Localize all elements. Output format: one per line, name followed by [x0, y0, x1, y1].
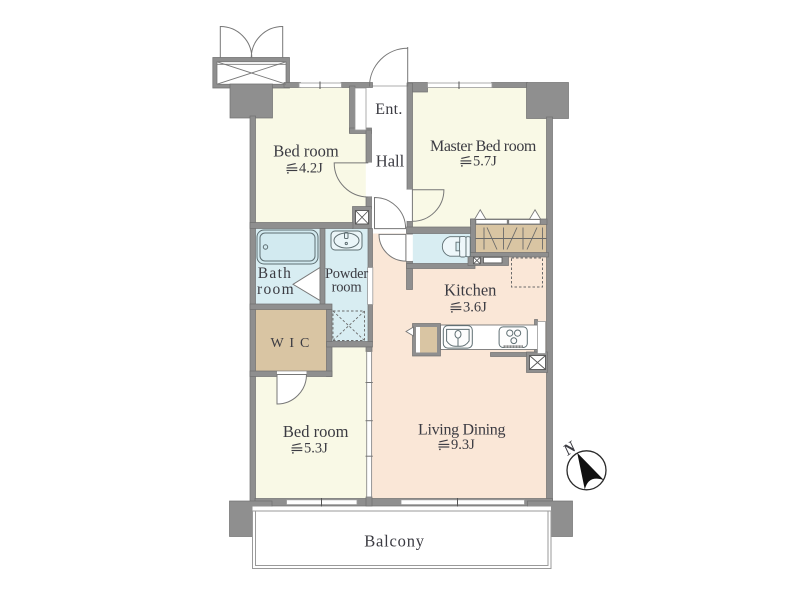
svg-text:9.3J: 9.3J: [451, 437, 475, 453]
svg-text:Ent.: Ent.: [375, 101, 402, 118]
svg-text:5.3J: 5.3J: [304, 441, 328, 457]
svg-text:Hall: Hall: [376, 152, 405, 171]
svg-text:4.2J: 4.2J: [299, 161, 323, 177]
svg-text:Master Bed room: Master Bed room: [430, 138, 537, 155]
svg-text:W I C: W I C: [271, 336, 311, 351]
svg-text:Bed room: Bed room: [283, 422, 349, 441]
svg-text:room: room: [257, 281, 295, 298]
svg-text:Kitchen: Kitchen: [444, 281, 496, 300]
svg-text:room: room: [332, 280, 363, 296]
svg-text:Bath: Bath: [258, 265, 292, 282]
svg-text:Living Dining: Living Dining: [418, 422, 506, 439]
svg-text:Bed room: Bed room: [273, 142, 339, 161]
svg-text:5.7J: 5.7J: [473, 154, 497, 170]
svg-text:3.6J: 3.6J: [463, 300, 487, 316]
svg-text:Balcony: Balcony: [364, 532, 425, 551]
